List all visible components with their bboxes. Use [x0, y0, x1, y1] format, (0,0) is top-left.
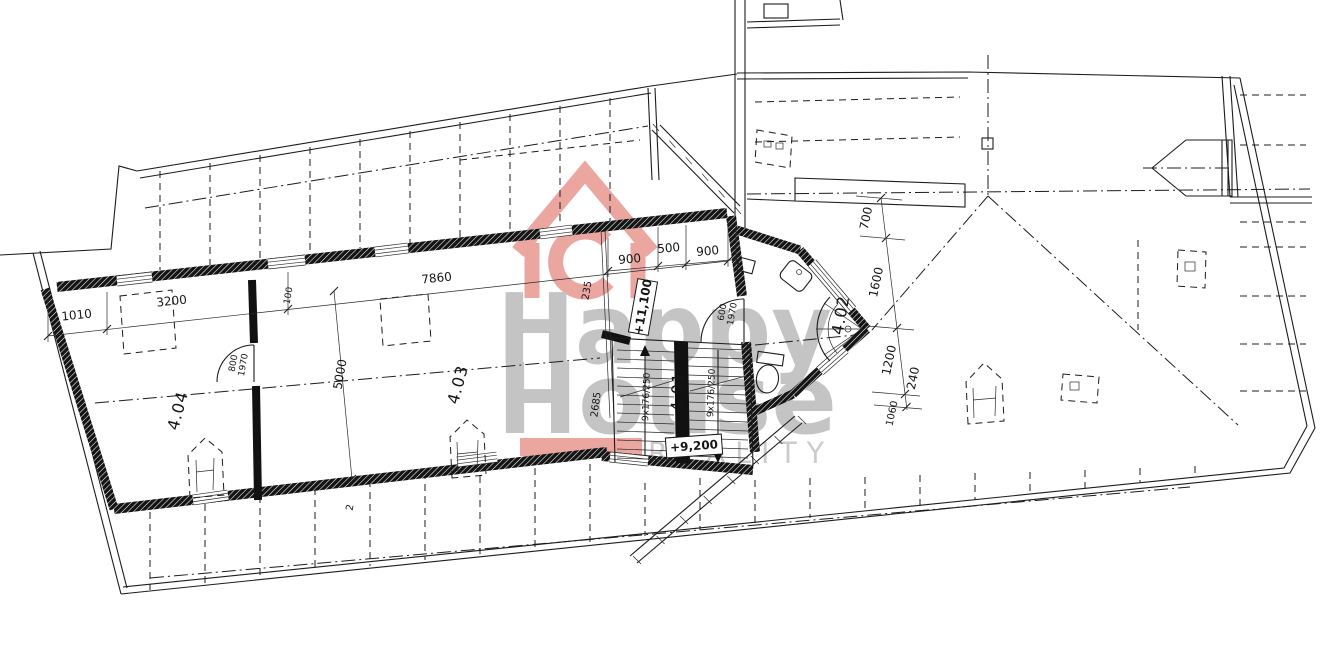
wall-404-403-upper [252, 280, 254, 343]
west-wall [45, 289, 114, 509]
hip-line-left [872, 196, 988, 330]
dim-3200: 3200 [156, 292, 188, 309]
room-label-401: 4.01 [667, 372, 687, 412]
skylight-403 [380, 294, 431, 346]
roof-grid-right-strip [755, 95, 1306, 391]
ridge-line [747, 189, 1310, 194]
floor-plan-drawing: Happy House REALITY [0, 0, 1328, 659]
roof-grid-lower [150, 452, 1195, 590]
roof-grid-upper-left [160, 98, 610, 270]
dim-1200: 1200 [879, 344, 899, 377]
dim-1010: 1010 [61, 306, 93, 323]
dim-240: 240 [904, 366, 922, 391]
dim-900b: 900 [696, 243, 720, 259]
door-label-404: 800 1970 [227, 351, 251, 377]
dim-900a: 900 [618, 251, 642, 267]
stair-label-right: 9x176/250 [706, 368, 718, 417]
floor-plan-page: Happy House REALITY [0, 0, 1328, 659]
wall-404-403-lower [256, 386, 258, 500]
dim-1600: 1600 [866, 266, 886, 299]
dim-700: 700 [857, 206, 875, 231]
roof-window-arrow-404 [188, 438, 224, 498]
room-label-404: 4.04 [163, 389, 192, 432]
dim-2: 2 [345, 503, 357, 511]
room-label-403: 4.03 [443, 363, 472, 406]
dim-7860: 7860 [421, 269, 453, 286]
stair-label-left: 9x176/250 [641, 372, 653, 421]
dim-chain-right [881, 198, 907, 410]
dim-500: 500 [657, 240, 681, 256]
chimney-flue-3 [1061, 374, 1099, 403]
dim-100: 100 [283, 286, 296, 305]
roof-window-arrow-right [966, 363, 1004, 424]
chimney-flue-2 [1177, 250, 1206, 288]
apartment-walls [45, 213, 867, 509]
level-marker-lower: +9,200 [665, 434, 722, 458]
dormer [1143, 140, 1232, 196]
chimney-flue-1 [755, 130, 792, 168]
wall-402-north [737, 230, 800, 250]
dim-5000: 5000 [331, 358, 350, 391]
hip-line-right [988, 196, 1238, 425]
dim-1060: 1060 [885, 400, 901, 427]
